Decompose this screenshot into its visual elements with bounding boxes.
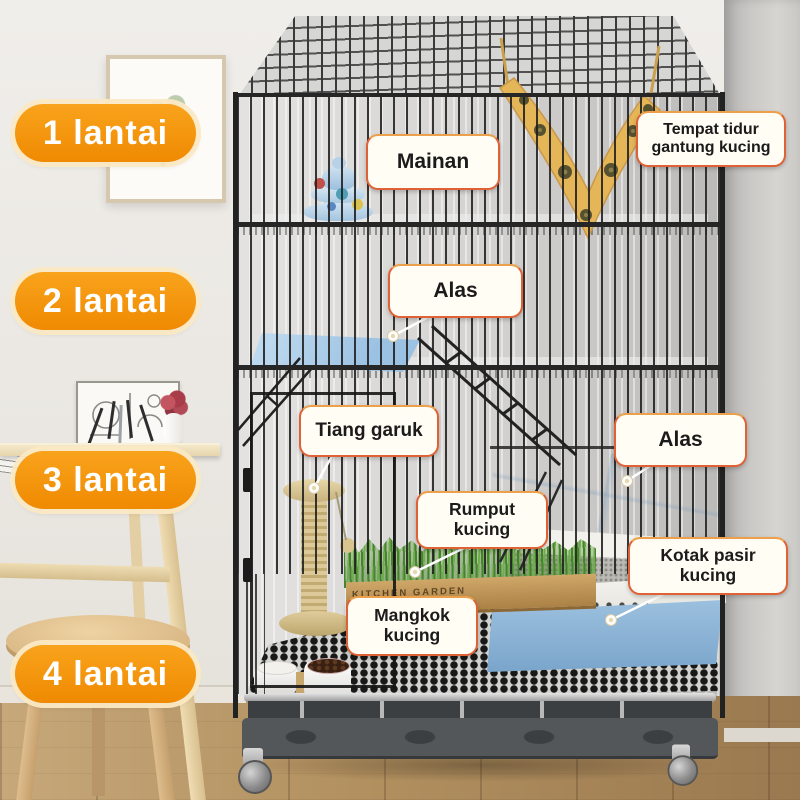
cage-rail xyxy=(237,222,722,227)
litter-tray-base xyxy=(242,718,718,759)
cage-rail xyxy=(237,365,722,370)
door-latch xyxy=(243,468,252,492)
cage-top-grid xyxy=(237,16,722,98)
rail-post xyxy=(620,701,624,719)
rail-post xyxy=(300,701,304,719)
item-label-alas-2: Alas xyxy=(388,264,523,318)
caster-wheel xyxy=(666,745,697,790)
item-label-tiang-garuk: Tiang garuk xyxy=(299,405,439,457)
cage-corner-post xyxy=(720,92,725,718)
item-label-tempat-tidur: Tempat tidur gantung kucing xyxy=(636,111,786,167)
floor-badge-3: 3 lantai xyxy=(15,451,196,509)
baseboard-right xyxy=(724,728,800,742)
cage-corner-post xyxy=(233,92,238,718)
floor-badge-4: 4 lantai xyxy=(15,645,196,703)
door-latch xyxy=(243,558,252,582)
cage-rail xyxy=(237,93,722,97)
item-label-rumput: Rumput kucing xyxy=(416,491,548,549)
rail-post xyxy=(380,701,384,719)
product-photo: KITCHEN GARDEN xyxy=(0,0,800,800)
caster-wheel xyxy=(236,748,270,798)
rail-post xyxy=(460,701,464,719)
item-label-kotak-pasir: Kotak pasir kucing xyxy=(628,537,788,595)
item-label-mainan: Mainan xyxy=(366,134,500,190)
base-gap xyxy=(248,701,712,719)
item-label-alas-3: Alas xyxy=(614,413,747,467)
floor-badge-1: 1 lantai xyxy=(15,104,196,162)
floor-badge-2: 2 lantai xyxy=(15,272,196,330)
rail-post xyxy=(540,701,544,719)
item-label-mangkok: Mangkok kucing xyxy=(346,596,478,656)
